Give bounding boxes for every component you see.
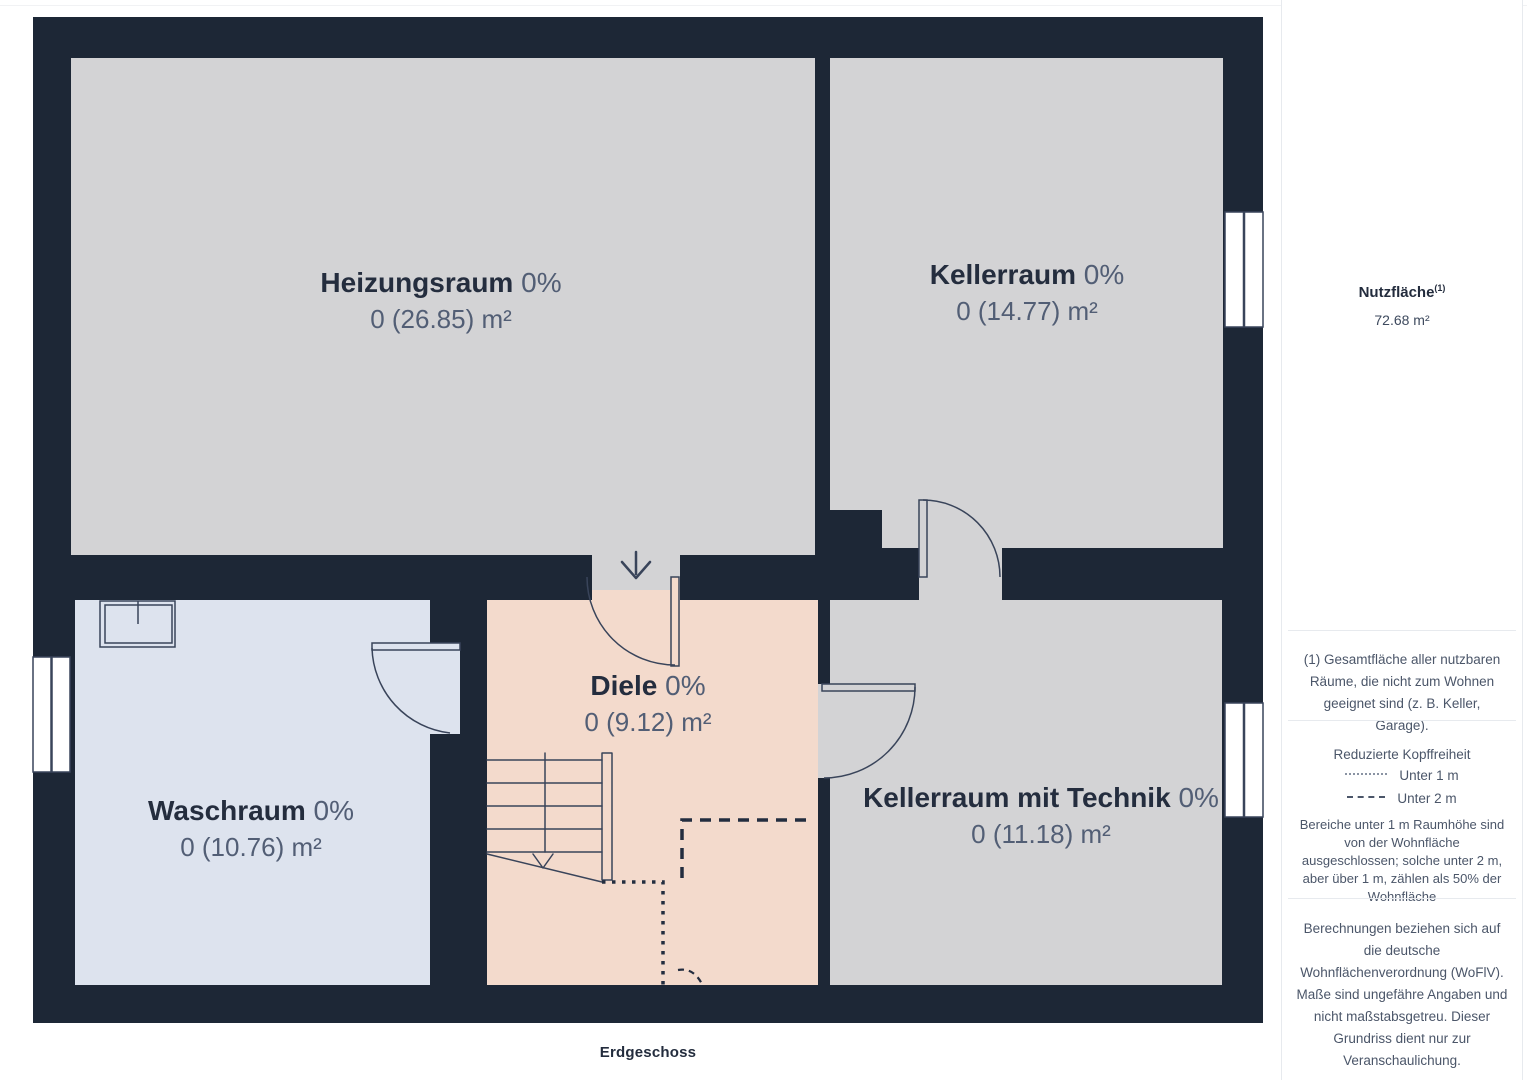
- legend-under-2m: Unter 2 m: [1282, 791, 1522, 806]
- dotted-line-sample: [1345, 773, 1387, 775]
- window-right-wall-upper: [1225, 212, 1263, 327]
- room-label-kellerraum: Kellerraum 0% 0 (14.77) m²: [930, 258, 1125, 327]
- room-percent: 0%: [521, 267, 561, 298]
- room-label-diele: Diele 0% 0 (9.12) m²: [584, 669, 711, 738]
- room-label-waschraum: Waschraum 0% 0 (10.76) m²: [148, 794, 354, 863]
- room-area: 0 (9.12) m²: [584, 706, 711, 738]
- disclaimer-text: Berechnungen beziehen sich auf die deuts…: [1294, 918, 1510, 1072]
- info-sidebar: Nutzfläche(1) 72.68 m² (1) Gesamtfläche …: [1281, 0, 1523, 1080]
- room-percent: 0%: [665, 670, 705, 701]
- room-area: 0 (26.85) m²: [320, 303, 561, 335]
- usable-area-value: 72.68 m²: [1282, 312, 1522, 328]
- legend-label: Unter 1 m: [1399, 768, 1458, 783]
- room-floor-kellerraum: [830, 58, 1223, 600]
- floorplan-page: Heizungsraum 0% 0 (26.85) m² Kellerraum …: [0, 0, 1527, 1080]
- footnote-marker: (1): [1434, 283, 1445, 293]
- sidebar-divider: [1288, 898, 1516, 899]
- headroom-title: Reduzierte Kopffreiheit: [1282, 744, 1522, 766]
- room-area: 0 (10.76) m²: [148, 831, 354, 863]
- room-label-heizungsraum: Heizungsraum 0% 0 (26.85) m²: [320, 266, 561, 335]
- footnote-text: (1) Gesamtfläche aller nutzbaren Räume, …: [1282, 649, 1522, 737]
- room-name: Kellerraum: [930, 259, 1076, 290]
- room-percent: 0%: [1084, 259, 1124, 290]
- room-percent: 0%: [1178, 782, 1218, 813]
- room-name: Diele: [590, 670, 657, 701]
- dashed-line-sample: [1347, 796, 1385, 798]
- room-percent: 0%: [314, 795, 354, 826]
- room-area: 0 (11.18) m²: [863, 818, 1219, 850]
- window-left-wall: [33, 657, 70, 772]
- legend-under-1m: Unter 1 m: [1282, 768, 1522, 783]
- legend-label: Unter 2 m: [1397, 791, 1456, 806]
- room-floor-waschraum: [75, 600, 460, 985]
- sidebar-divider: [1288, 630, 1516, 631]
- sidebar-divider: [1288, 720, 1516, 721]
- disclaimer-block: Berechnungen beziehen sich auf die deuts…: [1282, 918, 1522, 1080]
- room-label-kellerraum-technik: Kellerraum mit Technik 0% 0 (11.18) m²: [863, 781, 1219, 850]
- room-area: 0 (14.77) m²: [930, 295, 1125, 327]
- room-name: Kellerraum mit Technik: [863, 782, 1171, 813]
- floor-name-label: Erdgeschoss: [600, 1044, 696, 1061]
- room-name: Heizungsraum: [320, 267, 513, 298]
- usable-area-title: Nutzfläche(1): [1282, 283, 1522, 301]
- headroom-note: Bereiche unter 1 m Raumhöhe sind von der…: [1282, 816, 1522, 906]
- room-floor-diele: [487, 555, 818, 985]
- usable-area-block: Nutzfläche(1) 72.68 m²: [1282, 283, 1522, 328]
- window-right-wall-lower: [1225, 703, 1263, 817]
- room-name: Waschraum: [148, 795, 306, 826]
